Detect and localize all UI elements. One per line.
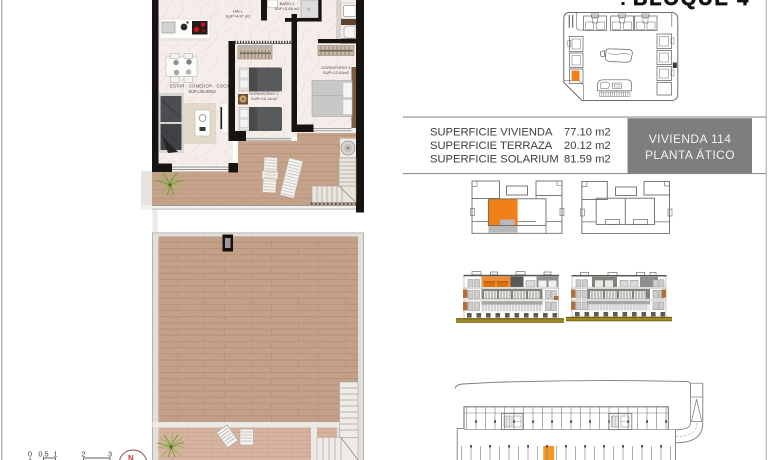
svg-text:SUPERFICIE TERRAZA: SUPERFICIE TERRAZA — [430, 140, 553, 152]
svg-text:0: 0 — [28, 449, 32, 458]
svg-text:SUPERFICIE VIVIENDA: SUPERFICIE VIVIENDA — [430, 127, 553, 139]
svg-text:SUP=3.68 m2: SUP=3.68 m2 — [274, 6, 300, 11]
svg-text:3: 3 — [108, 449, 112, 458]
svg-text:PLANTA ÁTICO: PLANTA ÁTICO — [645, 147, 735, 162]
svg-text:N: N — [128, 454, 134, 460]
svg-text:2: 2 — [81, 449, 85, 458]
svg-text:SUP=10.14m2: SUP=10.14m2 — [251, 96, 278, 101]
svg-text:77.10 m2: 77.10 m2 — [564, 127, 611, 139]
svg-text:ESTAR - COMEDOR - COCINA: ESTAR - COMEDOR - COCINA — [170, 84, 234, 89]
svg-text:SUPERFICIE SOLARIUM: SUPERFICIE SOLARIUM — [430, 154, 559, 166]
svg-text:BLOQUE 4: BLOQUE 4 — [633, 0, 750, 10]
svg-text:0,5: 0,5 — [38, 449, 48, 458]
svg-text:81.59 m2: 81.59 m2 — [564, 154, 611, 166]
svg-text:SUP=4.87 m2: SUP=4.87 m2 — [225, 14, 251, 19]
svg-text:SUP=36.00m2: SUP=36.00m2 — [188, 89, 216, 94]
svg-text:1: 1 — [53, 449, 57, 458]
svg-text:20.12 m2: 20.12 m2 — [564, 140, 611, 152]
svg-text:VIVIENDA 114: VIVIENDA 114 — [649, 132, 732, 146]
svg-text:SUP=12.00m2: SUP=12.00m2 — [323, 70, 350, 75]
